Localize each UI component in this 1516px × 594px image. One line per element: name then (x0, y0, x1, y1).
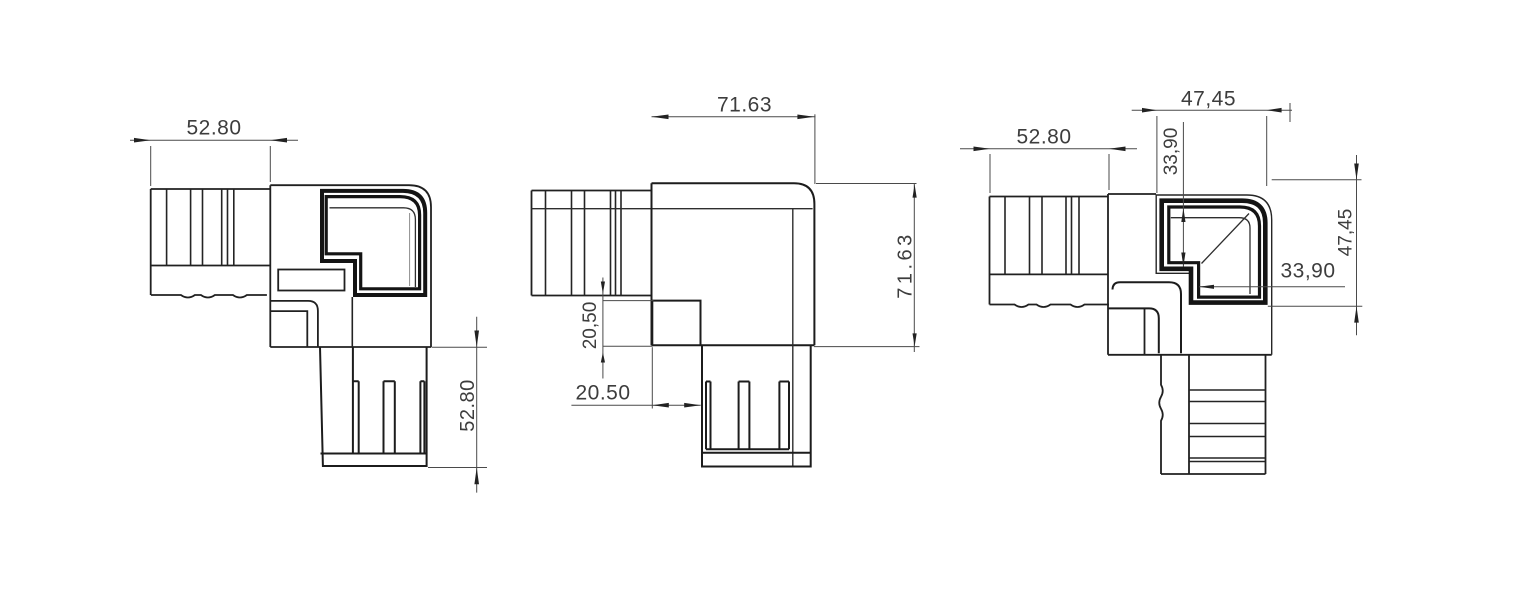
svg-text:20,50: 20,50 (580, 302, 601, 350)
svg-text:20.50: 20.50 (575, 382, 630, 405)
svg-text:71.63: 71.63 (717, 94, 772, 117)
svg-text:33,90: 33,90 (1280, 260, 1335, 283)
svg-text:52.80: 52.80 (1016, 126, 1071, 149)
svg-text:71.63: 71.63 (895, 231, 917, 299)
svg-text:52.80: 52.80 (186, 117, 241, 140)
svg-text:33,90: 33,90 (1161, 128, 1182, 176)
svg-text:47,45: 47,45 (1181, 88, 1236, 111)
svg-text:47,45: 47,45 (1336, 209, 1357, 257)
svg-text:52.80: 52.80 (457, 379, 479, 432)
